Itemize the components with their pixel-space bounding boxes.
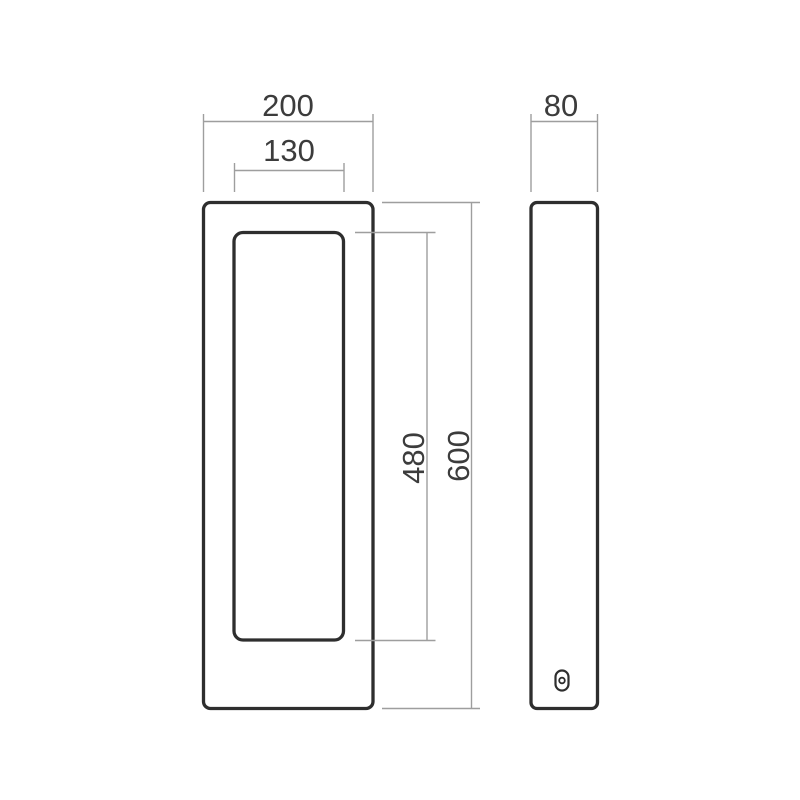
side-outline [531, 203, 598, 709]
front-view [204, 203, 374, 709]
dimension-depth: 80 [531, 88, 598, 192]
outer-width-label: 200 [262, 88, 314, 123]
side-view [531, 203, 598, 709]
dimension-inner-width: 130 [235, 133, 345, 192]
front-inner-panel-outline [234, 233, 344, 641]
depth-label: 80 [544, 88, 578, 123]
dimension-drawing: 200 130 80 480 600 [0, 0, 800, 800]
outer-height-label: 600 [441, 430, 476, 482]
inner-height-label: 480 [396, 432, 431, 484]
technical-drawing-canvas: 200 130 80 480 600 [0, 0, 800, 800]
inner-width-label: 130 [263, 133, 315, 168]
